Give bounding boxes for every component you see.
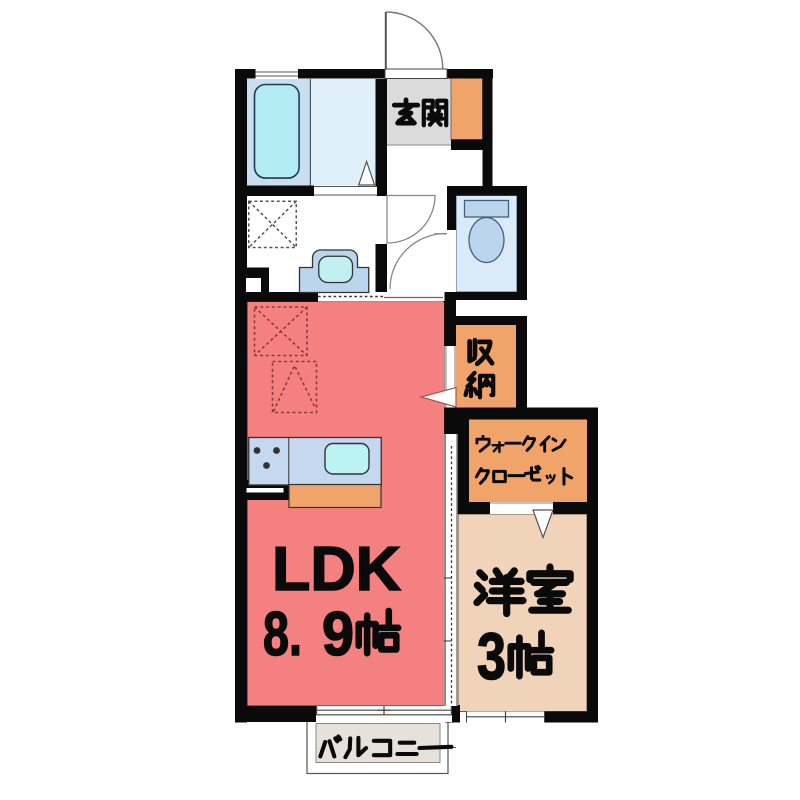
svg-text:9: 9 (322, 600, 354, 669)
svg-text:LDK: LDK (272, 535, 401, 604)
svg-text:8.: 8. (263, 600, 302, 669)
svg-text:3: 3 (477, 619, 506, 693)
